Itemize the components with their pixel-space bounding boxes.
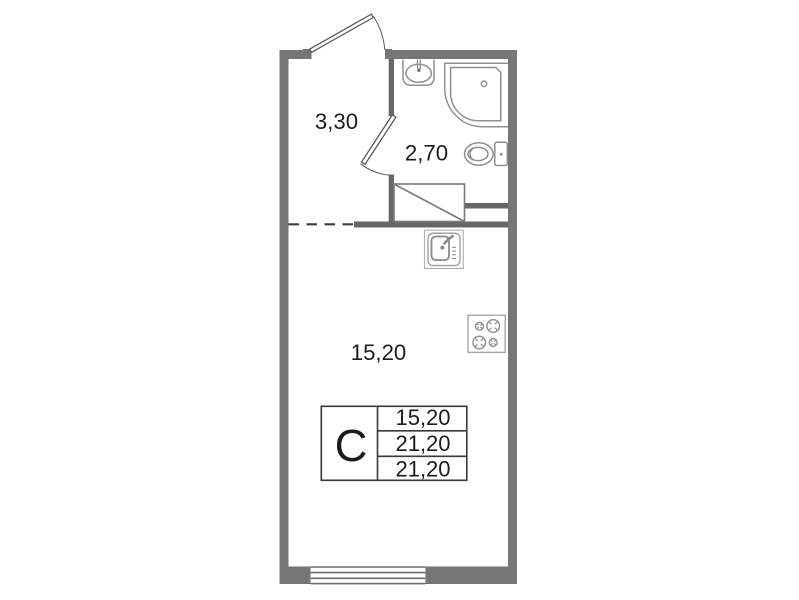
svg-text:21,20: 21,20 — [395, 457, 450, 482]
svg-text:3,30: 3,30 — [315, 109, 358, 134]
svg-text:15,20: 15,20 — [395, 405, 450, 430]
svg-text:15,20: 15,20 — [351, 340, 407, 365]
svg-text:С: С — [335, 420, 368, 471]
svg-text:2,70: 2,70 — [405, 141, 448, 166]
svg-text:21,20: 21,20 — [395, 431, 450, 456]
